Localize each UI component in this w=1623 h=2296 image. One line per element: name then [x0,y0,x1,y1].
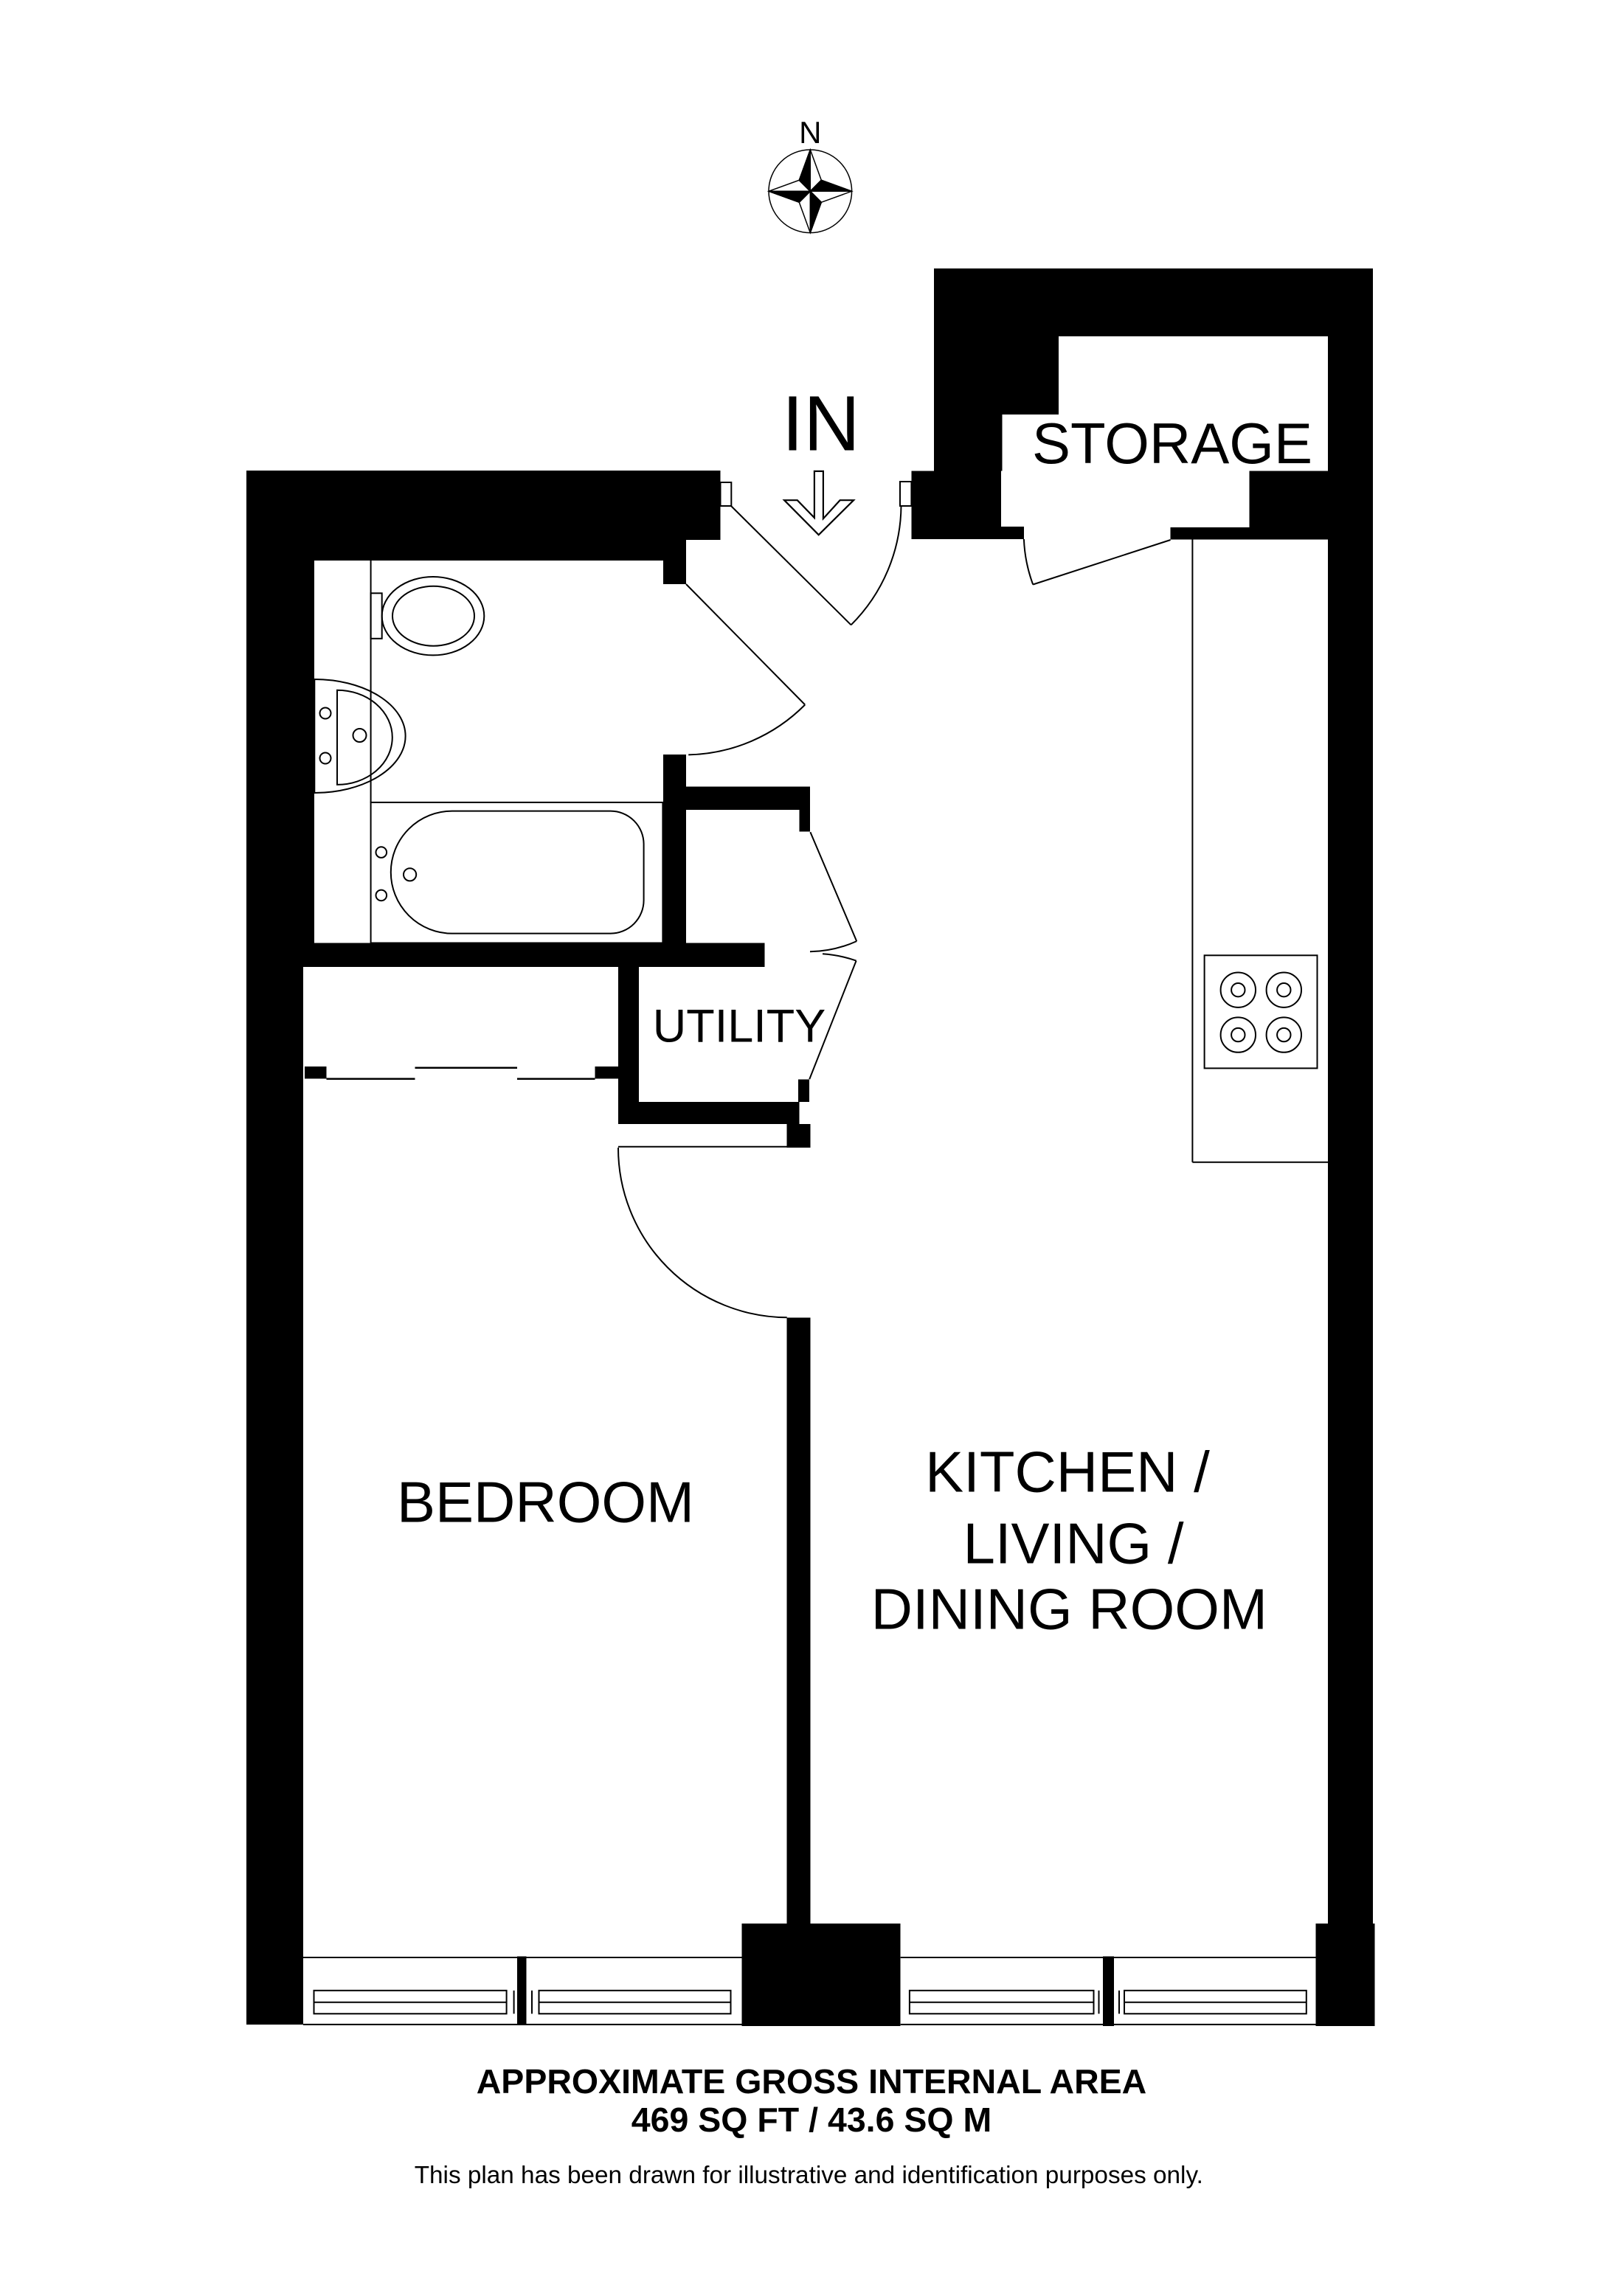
svg-text:IN: IN [782,380,860,467]
svg-text:LIVING /: LIVING / [963,1511,1183,1576]
svg-text:STORAGE: STORAGE [1032,411,1312,476]
svg-text:BEDROOM: BEDROOM [397,1470,694,1535]
svg-text:UTILITY: UTILITY [653,1000,826,1052]
svg-text:KITCHEN /: KITCHEN / [925,1440,1210,1505]
svg-text:N: N [799,115,821,150]
svg-text:APPROXIMATE GROSS INTERNAL ARE: APPROXIMATE GROSS INTERNAL AREA [477,2062,1147,2101]
svg-text:This plan has been drawn for i: This plan has been drawn for illustrativ… [415,2162,1203,2189]
svg-text:469 SQ FT / 43.6 SQ M: 469 SQ FT / 43.6 SQ M [631,2101,992,2139]
svg-text:DINING ROOM: DINING ROOM [871,1576,1267,1641]
